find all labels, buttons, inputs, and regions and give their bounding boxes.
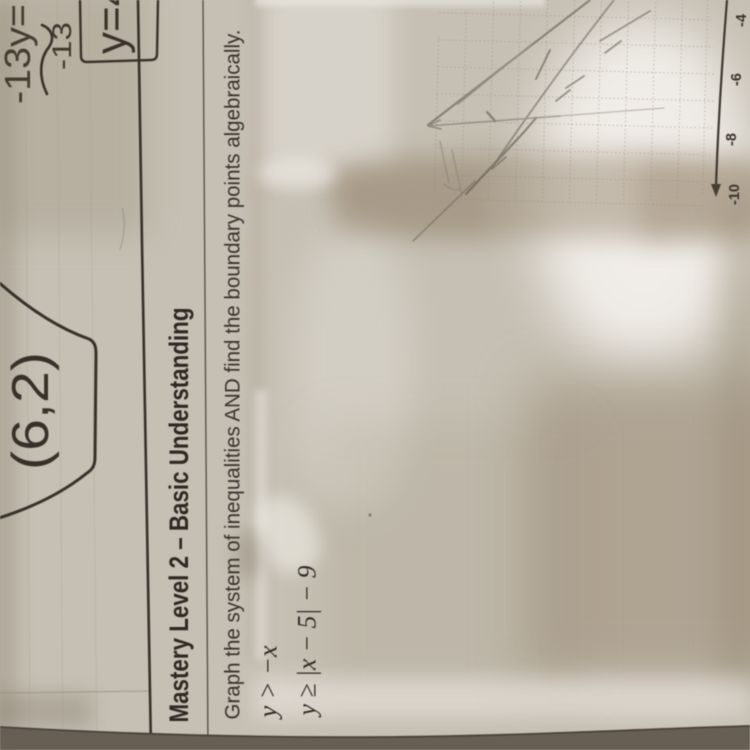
svg-text:Mastery Level 2 – Basic Unders: Mastery Level 2 – Basic Understanding: [164, 308, 194, 723]
svg-text:-8: -8: [724, 133, 740, 146]
svg-text:y ≥ |x − 5| − 9: y ≥ |x − 5| − 9: [293, 566, 322, 719]
svg-text:-4: -4: [734, 14, 750, 27]
svg-text:-6: -6: [729, 73, 745, 86]
svg-text:Graph the system of inequaliti: Graph the system of inequalities AND fin…: [222, 30, 245, 720]
svg-text:-13: -13: [47, 22, 77, 70]
svg-text:(6,2): (6,2): [2, 352, 60, 470]
svg-text:y=4: y=4: [87, 0, 136, 54]
svg-text:y > −x: y > −x: [254, 645, 283, 720]
svg-text:-10: -10: [727, 184, 743, 205]
svg-text:-13y=: -13y=: [0, 4, 38, 104]
